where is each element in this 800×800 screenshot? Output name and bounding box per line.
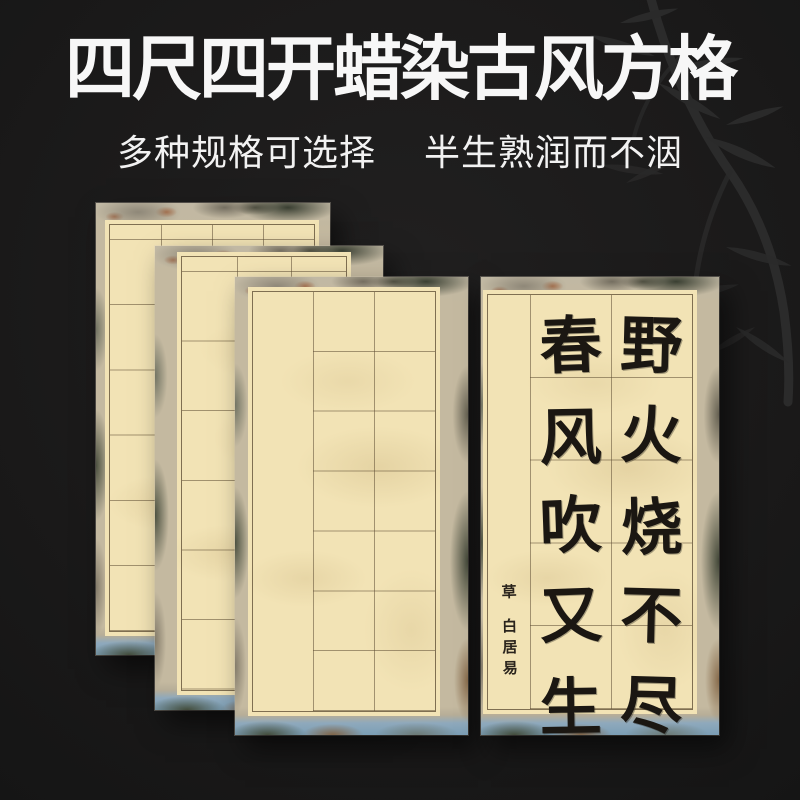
calligraphy-cell: 野 [610, 294, 693, 386]
wax-dyed-paper [248, 287, 440, 716]
poem-title-signature: 草 [501, 580, 517, 602]
calligraphy-cell: 不 [610, 564, 693, 656]
product-banner: 四尺四开蜡染古风方格 多种规格可选择 半生熟润而不洇 [0, 0, 800, 800]
calligraphy-cell: 尽 [610, 654, 693, 746]
calligraphy-grid: 春 野 风 火 吹 烧 又 不 生 尽 [530, 295, 692, 709]
header-band-line [182, 257, 346, 272]
calligraphy-cell: 生 [529, 656, 612, 747]
wax-dyed-paper: 春 野 风 火 吹 烧 又 不 生 尽 草 白居易 [483, 290, 697, 714]
subtitle-spec-text: 多种规格可选择 [117, 124, 376, 176]
calligraphy-cell: 烧 [610, 476, 693, 567]
page-title: 四尺四开蜡染古风方格 [0, 32, 800, 109]
calligraphy-cell: 吹 [528, 474, 612, 567]
subtitle: 多种规格可选择 半生熟润而不洇 [0, 124, 800, 176]
calligraphy-cell: 火 [610, 384, 693, 476]
poet-signature: 白居易 [498, 618, 520, 681]
grid-frame [252, 291, 436, 712]
grid-paper-sheet-front [235, 277, 468, 735]
grid-rows [313, 292, 435, 711]
calligraphy-cell: 又 [528, 564, 612, 657]
subtitle-quality-text: 半生熟润而不洇 [424, 124, 683, 176]
grid-frame: 春 野 风 火 吹 烧 又 不 生 尽 草 白居易 [487, 294, 693, 710]
calligraphy-cell: 风 [529, 386, 612, 477]
calligraphy-sheet: 春 野 风 火 吹 烧 又 不 生 尽 草 白居易 [481, 277, 719, 735]
signature-column: 草 白居易 [488, 295, 530, 709]
calligraphy-cell: 春 [528, 294, 612, 387]
